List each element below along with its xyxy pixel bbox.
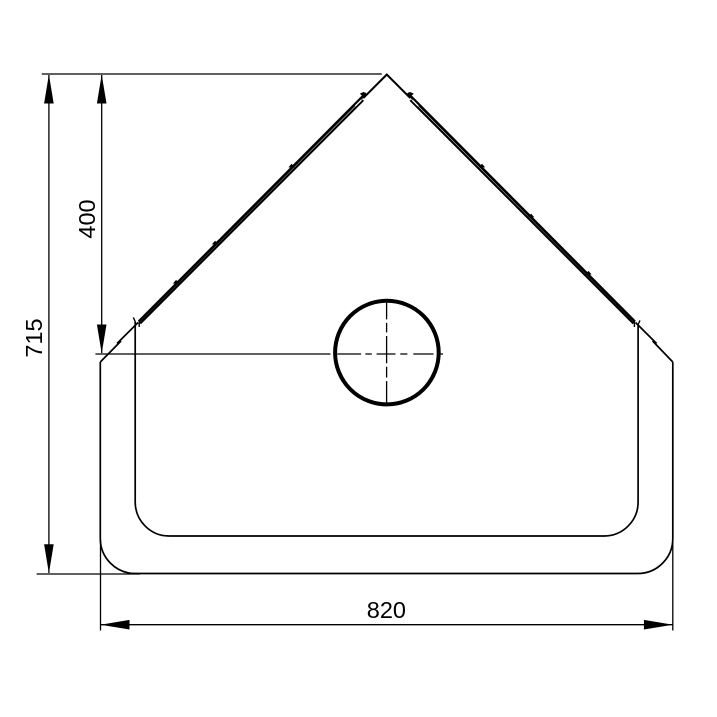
svg-text:715: 715 — [21, 318, 47, 357]
svg-text:820: 820 — [367, 597, 406, 623]
svg-text:400: 400 — [74, 199, 100, 238]
